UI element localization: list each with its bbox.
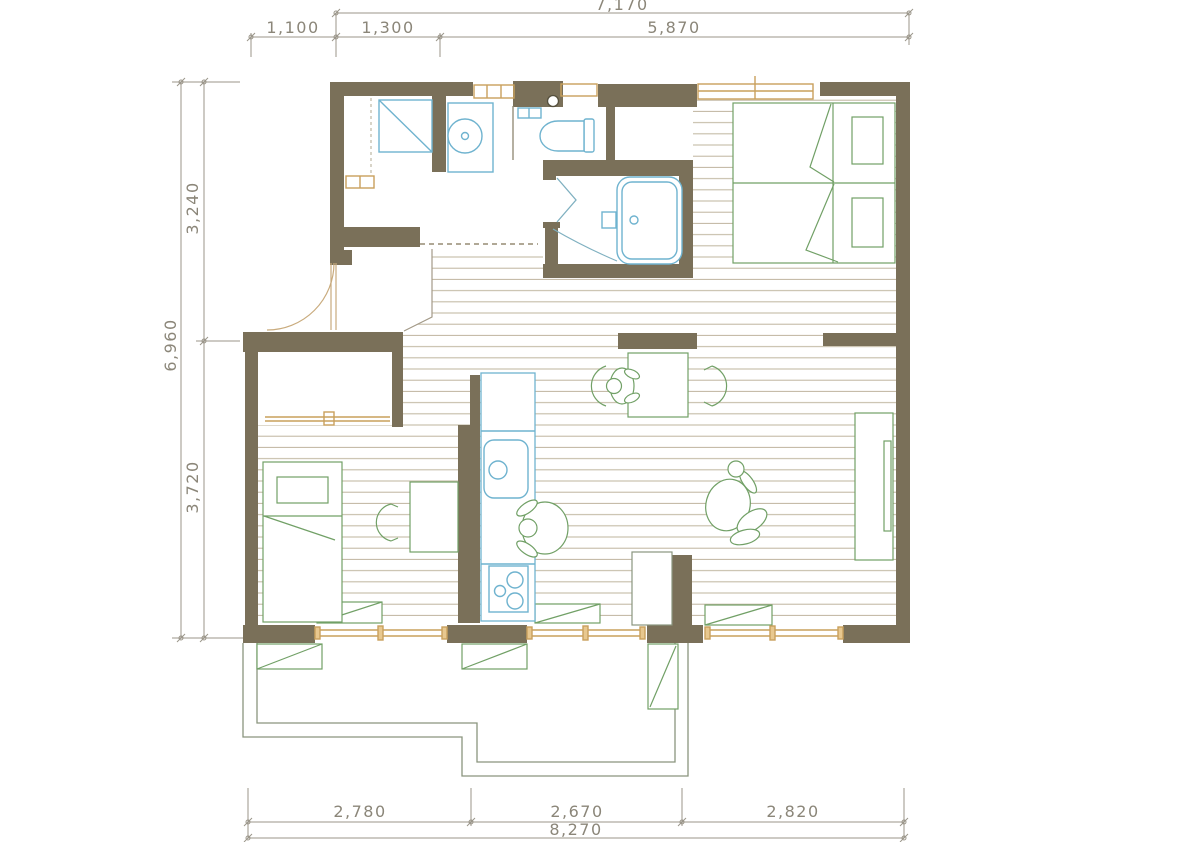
wall-closet-east	[392, 352, 403, 427]
tv-board	[855, 413, 893, 560]
wall-bath-west-upper	[543, 160, 556, 180]
dim-bottom-seg1: 2,780	[333, 802, 386, 821]
wall-bottom-center	[647, 625, 703, 643]
wall-bath-south	[543, 264, 692, 278]
kitchen-counter	[481, 373, 535, 621]
wall-kitchen-stub	[470, 375, 480, 425]
dim-left-total: 6,960	[161, 318, 180, 371]
dim-top-total: 7,170	[595, 0, 648, 14]
dim-left-seg2: 3,720	[183, 460, 202, 513]
wall-bedroom-south-right	[823, 333, 910, 346]
wall-right	[896, 82, 910, 643]
wall-living-stub	[672, 555, 692, 625]
dim-bottom-seg2: 2,670	[550, 802, 603, 821]
wall-washroom-south	[344, 227, 420, 247]
dining-table	[628, 353, 688, 417]
wall-left-lower	[245, 332, 258, 643]
terrace-step	[257, 644, 322, 669]
dim-top-seg3: 5,870	[647, 18, 700, 37]
wall-hall-band	[243, 332, 403, 352]
pillow	[852, 198, 883, 247]
terrace-step	[462, 644, 527, 669]
floor-plan-canvas: 7,170 1,100 1,300 5,870 3,240 6,960 3,72…	[0, 0, 1191, 842]
twin-beds	[733, 103, 895, 263]
wall-bottom-mid	[447, 625, 527, 643]
stove	[489, 566, 528, 612]
kitchen-sink	[484, 440, 528, 498]
dim-bottom-seg3: 2,820	[766, 802, 819, 821]
storage-cabinet	[632, 552, 672, 625]
floor-plan-page: 7,170 1,100 1,300 5,870 3,240 6,960 3,72…	[0, 0, 1191, 842]
desk	[410, 482, 458, 552]
dim-top-seg2: 1,300	[361, 18, 414, 37]
indoor-step	[705, 605, 772, 625]
wall-washer-alcove	[432, 96, 446, 172]
dim-top-seg1: 1,100	[266, 18, 319, 37]
wall-bath-north	[543, 160, 692, 176]
wall-entry-stub	[344, 250, 352, 265]
wall-kitchen-west	[458, 425, 480, 623]
entry-floor	[344, 247, 432, 332]
wall-bottom-right	[843, 625, 910, 643]
wall-top-left	[330, 82, 473, 96]
toilet-hand-basin-icon	[548, 96, 559, 107]
wall-left-upper	[330, 82, 344, 265]
pillow	[852, 117, 883, 164]
washing-machine	[379, 100, 432, 152]
terrace-step	[648, 644, 678, 709]
wall-bedroom-south-left	[618, 333, 697, 349]
single-bed	[263, 462, 342, 622]
pillow	[277, 477, 328, 503]
wall-bottom-left	[243, 625, 315, 643]
dim-bottom-total: 8,270	[549, 820, 602, 839]
indoor-step	[535, 604, 600, 623]
dim-left-seg1: 3,240	[183, 181, 202, 234]
wall-toilet-east	[606, 96, 615, 163]
vanity-sink	[448, 103, 493, 172]
shower-mixer	[602, 212, 616, 228]
